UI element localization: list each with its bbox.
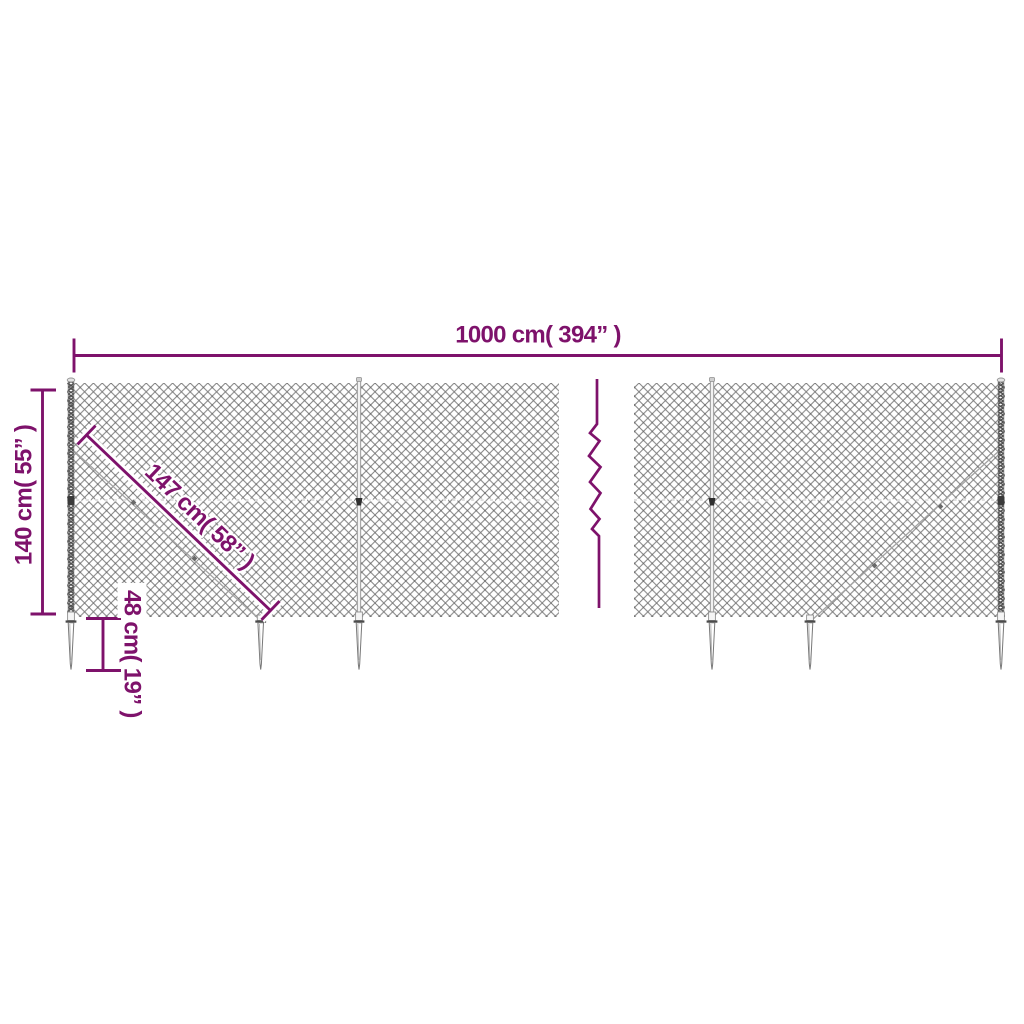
svg-text:1000 cm( 394” ): 1000 cm( 394” ) — [455, 322, 621, 349]
svg-text:48 cm( 19” ): 48 cm( 19” ) — [119, 590, 146, 718]
svg-text:140 cm( 55” ): 140 cm( 55” ) — [11, 425, 38, 565]
